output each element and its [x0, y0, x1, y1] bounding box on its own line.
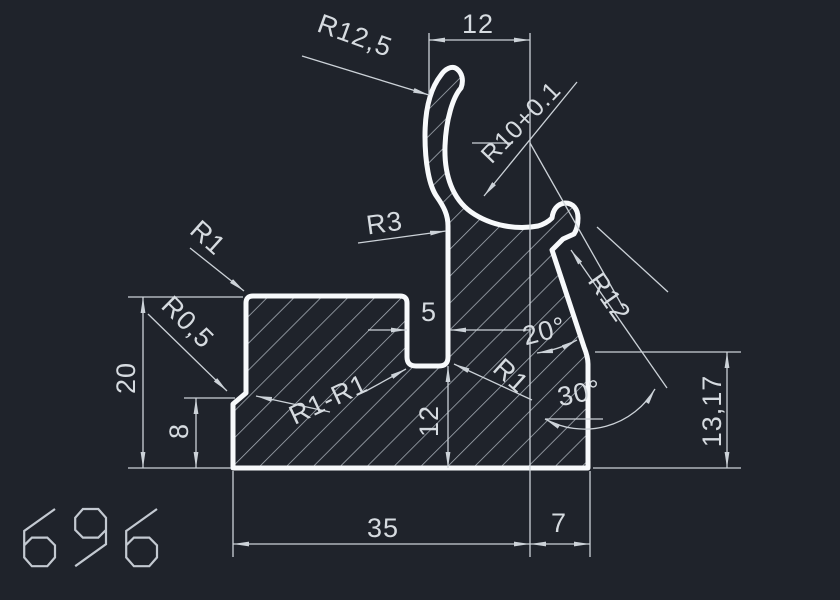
part-number-digit: [75, 509, 106, 566]
step-height-label: 8: [164, 423, 194, 439]
right-edge-radius-label: R12: [582, 267, 637, 327]
right-height-label: 13,17: [697, 375, 727, 448]
top-left-corner-radius-label: R1: [184, 214, 231, 261]
bore-radius-label: R10+0.1: [476, 76, 567, 169]
drawing-canvas: R12,5 12 R10+0.1 R3 R1 R0,5 20 8 R1-R1 5…: [0, 0, 840, 600]
part-number-digit: [126, 509, 157, 566]
opening-width-label: 12: [462, 9, 494, 39]
step-fillet-label: R0,5: [156, 290, 220, 354]
part-number: [24, 509, 157, 566]
part-number-digit: [24, 509, 55, 566]
stem-fillet-label: R3: [364, 206, 404, 241]
base-width-label: 35: [367, 513, 399, 543]
slot-width-label: 5: [421, 297, 437, 327]
outer-lip-radius-label: R12,5: [314, 8, 397, 63]
overall-height-label: 20: [111, 362, 141, 394]
slot-depth-label: 12: [414, 405, 444, 437]
base-right-width-label: 7: [551, 508, 567, 538]
leader-outer-lip: [302, 56, 429, 95]
cad-drawing: R12,5 12 R10+0.1 R3 R1 R0,5 20 8 R1-R1 5…: [0, 0, 840, 600]
